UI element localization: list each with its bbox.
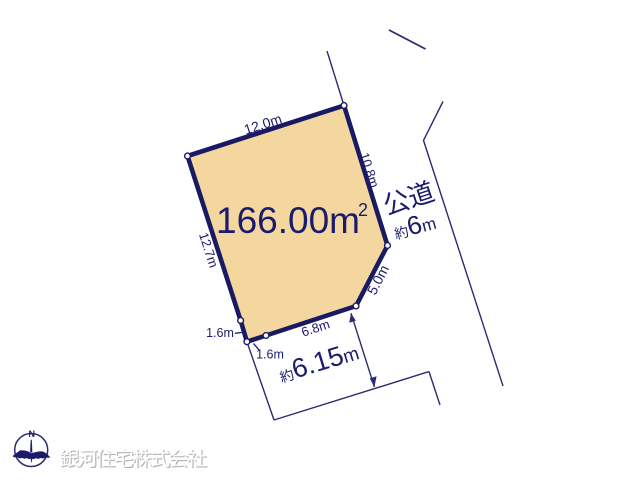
svg-text:N: N: [28, 429, 35, 439]
svg-text:166.00m: 166.00m: [216, 200, 360, 241]
svg-text:2: 2: [358, 200, 368, 220]
svg-text:6.15: 6.15: [288, 340, 347, 384]
svg-text:1.6m: 1.6m: [206, 326, 234, 340]
svg-text:1.6m: 1.6m: [256, 348, 284, 362]
